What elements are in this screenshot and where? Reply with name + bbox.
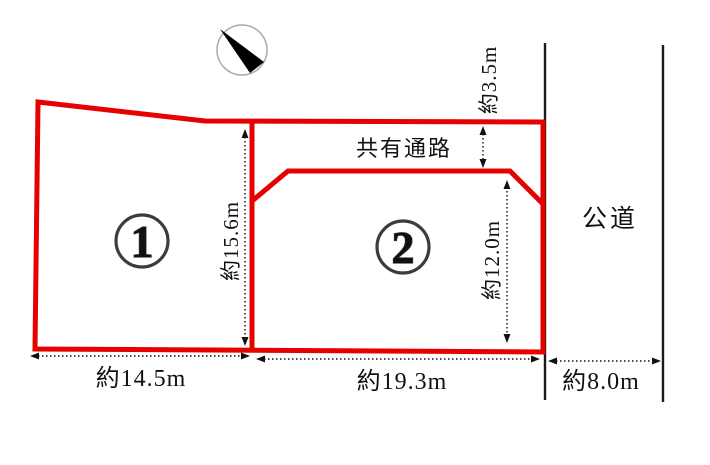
passage-width-label: 約3.5m (477, 46, 501, 115)
dim-arrow-road-width (548, 358, 661, 365)
plot2-number: 2 (392, 222, 415, 273)
dim-arrow-plot1-frontage (30, 353, 250, 360)
land-plot-diagram: 1 2 共有通路 公道 約3.5m 約15.6m 約12.0m 約14.5m 約… (0, 0, 710, 465)
plot1-frontage-label: 約14.5m (96, 365, 187, 392)
plot2-badge: 2 (377, 221, 429, 273)
dim-arrow-plot2-frontage (256, 356, 540, 363)
dim-arrow-passage-width (480, 126, 487, 168)
plot2-frontage-label: 約19.3m (357, 368, 448, 395)
shared-passage-label: 共有通路 (356, 136, 452, 161)
compass-icon (217, 25, 267, 75)
plot1-depth-label: 約15.6m (219, 201, 243, 281)
outer-plot-boundary (35, 102, 543, 352)
plot1-number: 1 (131, 216, 154, 267)
plot2-inner-boundary (252, 171, 543, 204)
road-width-label: 約8.0m (562, 368, 640, 395)
public-road-label: 公道 (582, 205, 638, 233)
diagram-svg: 1 2 共有通路 公道 約3.5m 約15.6m 約12.0m 約14.5m 約… (0, 0, 710, 465)
dim-arrow-plot2-depth (504, 180, 511, 343)
plot2-depth-label: 約12.0m (480, 220, 504, 300)
plot1-badge: 1 (116, 215, 168, 267)
